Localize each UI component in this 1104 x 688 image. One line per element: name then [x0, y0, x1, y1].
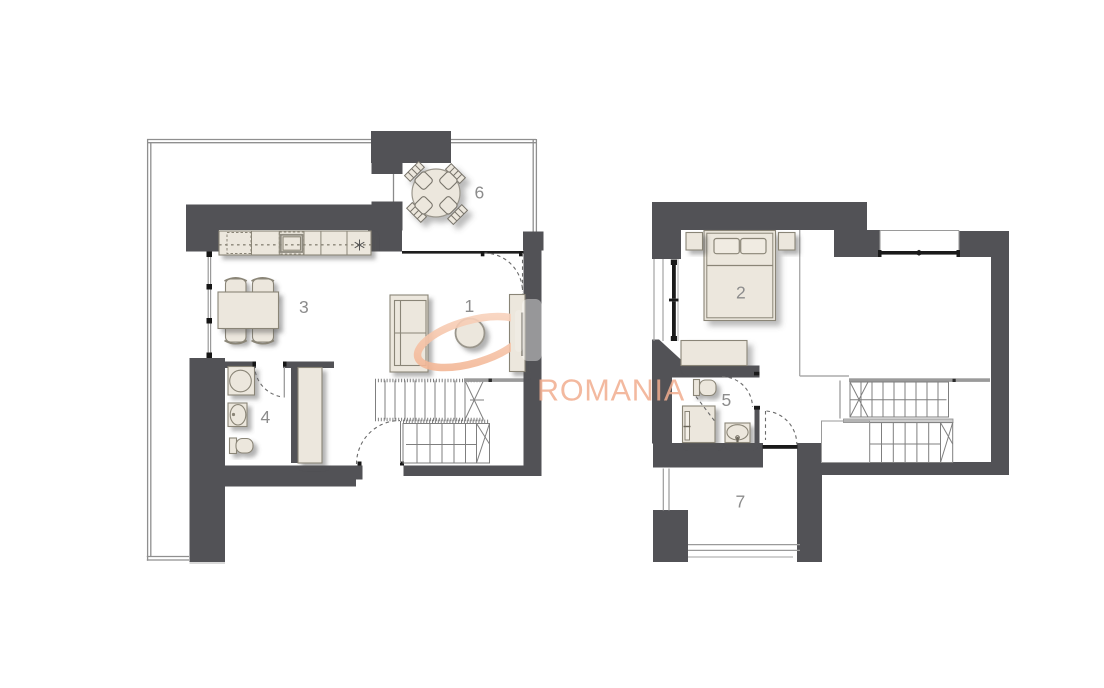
svg-text:7: 7: [736, 492, 746, 512]
svg-text:1: 1: [465, 296, 475, 316]
svg-text:5: 5: [722, 390, 732, 410]
svg-text:6: 6: [475, 183, 485, 203]
svg-text:3: 3: [299, 297, 309, 317]
svg-text:2: 2: [736, 283, 746, 303]
svg-text:ROMANIA: ROMANIA: [537, 374, 685, 408]
svg-text:4: 4: [261, 407, 271, 427]
